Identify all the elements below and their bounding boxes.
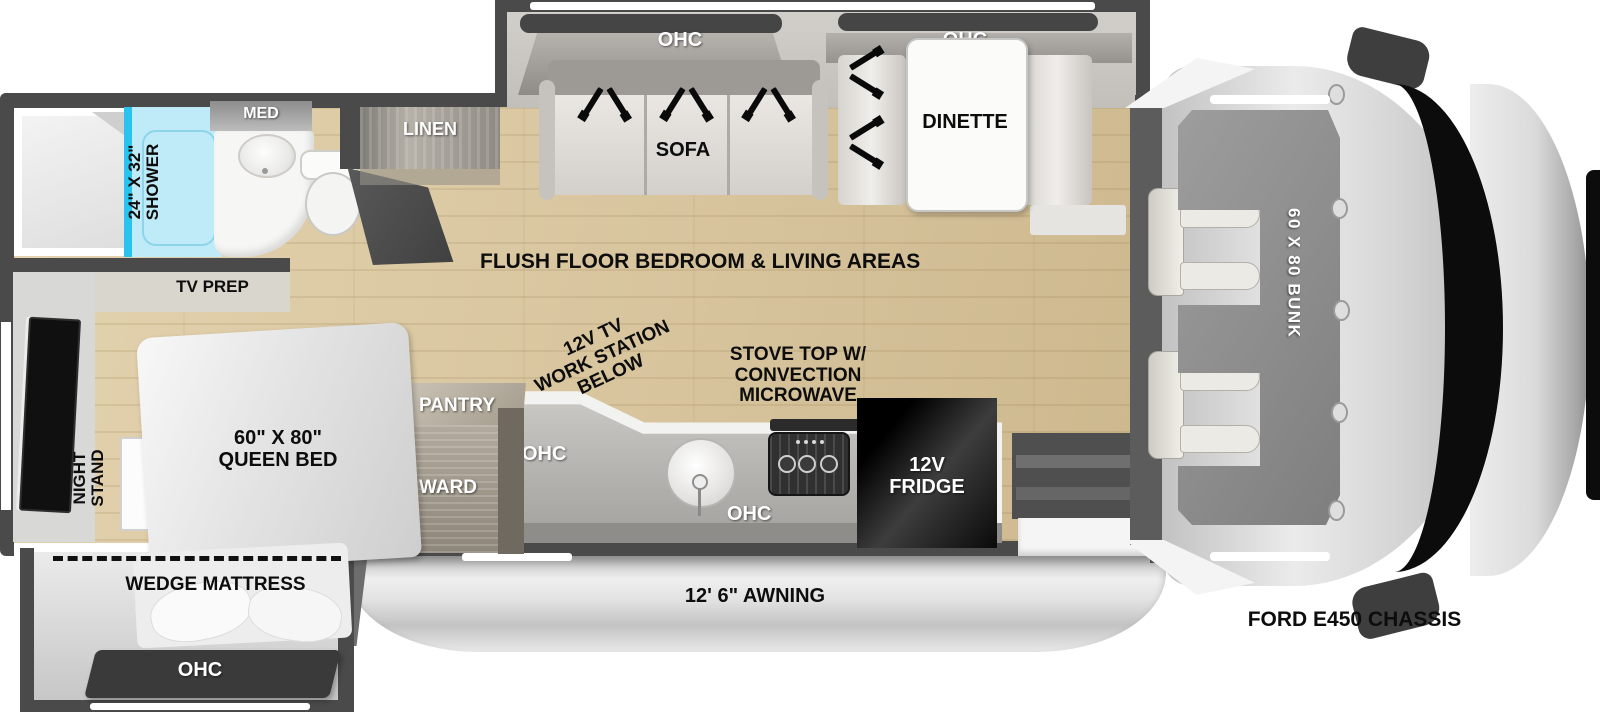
rear-window [1,322,11,510]
seatbelt-marker [848,42,888,102]
seatbelt-marker [657,86,717,126]
seatbelt-marker [739,86,799,126]
stove-label-line1: STOVE TOP W/ [708,345,888,366]
dinette-bench-cabinet [1030,205,1126,235]
bath-wall-right [340,107,362,169]
queen-bed-label: 60" X 80" QUEEN BED [168,428,388,471]
night-stand-label: NIGHT STAND [71,421,125,535]
rv-floorplan: 12' 6" AWNING OHC SOFA OHC DINETTE 24" X… [0,0,1600,712]
front-grille-edge [1586,170,1600,500]
top-slideout-wall-left [495,0,507,107]
fridge-label-line2: FRIDGE [857,477,997,499]
entry-step-band [1016,487,1132,500]
burner-icon [798,455,816,473]
dinette-label: DINETTE [900,112,1030,134]
kitchen-sink [666,438,736,508]
kitchen-faucet-stem [698,488,701,516]
slideout-window-bar [530,2,1095,10]
linen-label: LINEN [362,120,498,139]
clearance-bar-bottom [1210,552,1330,561]
kitchen-ohc-left-label: OHC [522,444,566,466]
top-slideout-wall-right [1136,0,1150,107]
shower-name-text: SHOWER [144,132,162,232]
bottom-window-bar [462,553,572,561]
stove-label-line3: MICROWAVE [708,386,888,407]
clearance-bar-top [1210,95,1330,104]
rivet [1333,300,1350,321]
rivet [1328,500,1345,521]
pantry-cabinet-side [498,408,524,554]
rivet [1331,198,1348,219]
fridge-label-line1: 12V [857,455,997,477]
cab-seat-arm [1180,262,1260,290]
queen-bed-line2: QUEEN BED [168,450,388,472]
bunk-label: 60 X 80 BUNK [1284,208,1302,338]
med-label: MED [210,105,312,122]
wedge-mattress-label: WEDGE MATTRESS [108,575,323,596]
burner-icon [778,455,796,473]
seatbelt-marker [575,86,635,126]
stove-vent [770,419,870,431]
rivet [1331,402,1348,423]
bath-wall-bottom [13,258,290,272]
seatbelt-marker [848,112,888,172]
queen-bed-line1: 60" X 80" [168,428,388,450]
bath-faucet [262,168,268,174]
rivet [1328,84,1345,105]
stove-label: STOVE TOP W/ CONVECTION MICROWAVE [708,345,888,407]
sofa-ohc-label: OHC [610,30,750,52]
entry-steps [1012,433,1136,519]
bath-bench-pad-inner [22,116,126,248]
linen-cabinet-shadow [360,169,500,185]
sofa-armrest-right [812,80,828,200]
entry-step-band [1016,455,1132,468]
kitchen-ohc-right-label: OHC [727,504,771,526]
wedge-bottom-bar [90,703,310,710]
stove-knobs [796,440,800,444]
pantry-label: PANTRY [396,396,518,417]
dinette-bench-right [1022,55,1092,205]
wedge-fold-line [53,556,341,561]
wedge-ohc-label: OHC [140,660,260,682]
shower-label: 24" X 32" SHOWER [126,132,226,232]
shower-size-text: 24" X 32" [126,132,144,232]
stove-label-line2: CONVECTION [708,366,888,387]
cab-seat-arm [1180,425,1260,453]
burner-icon [820,455,838,473]
flush-floor-label: FLUSH FLOOR BEDROOM & LIVING AREAS [480,251,912,274]
tv-prep-label: TV PREP [135,278,290,296]
sofa-armrest-left [539,80,555,200]
chassis-label: FORD E450 CHASSIS [1212,609,1497,632]
awning-label: 12' 6" AWNING [640,586,870,608]
fridge-label: 12V FRIDGE [857,455,997,498]
wedge-wall-left [20,548,34,708]
sofa-label: SOFA [613,140,753,162]
night-stand-line1: NIGHT [71,421,89,535]
night-stand-line2: STAND [89,421,107,535]
